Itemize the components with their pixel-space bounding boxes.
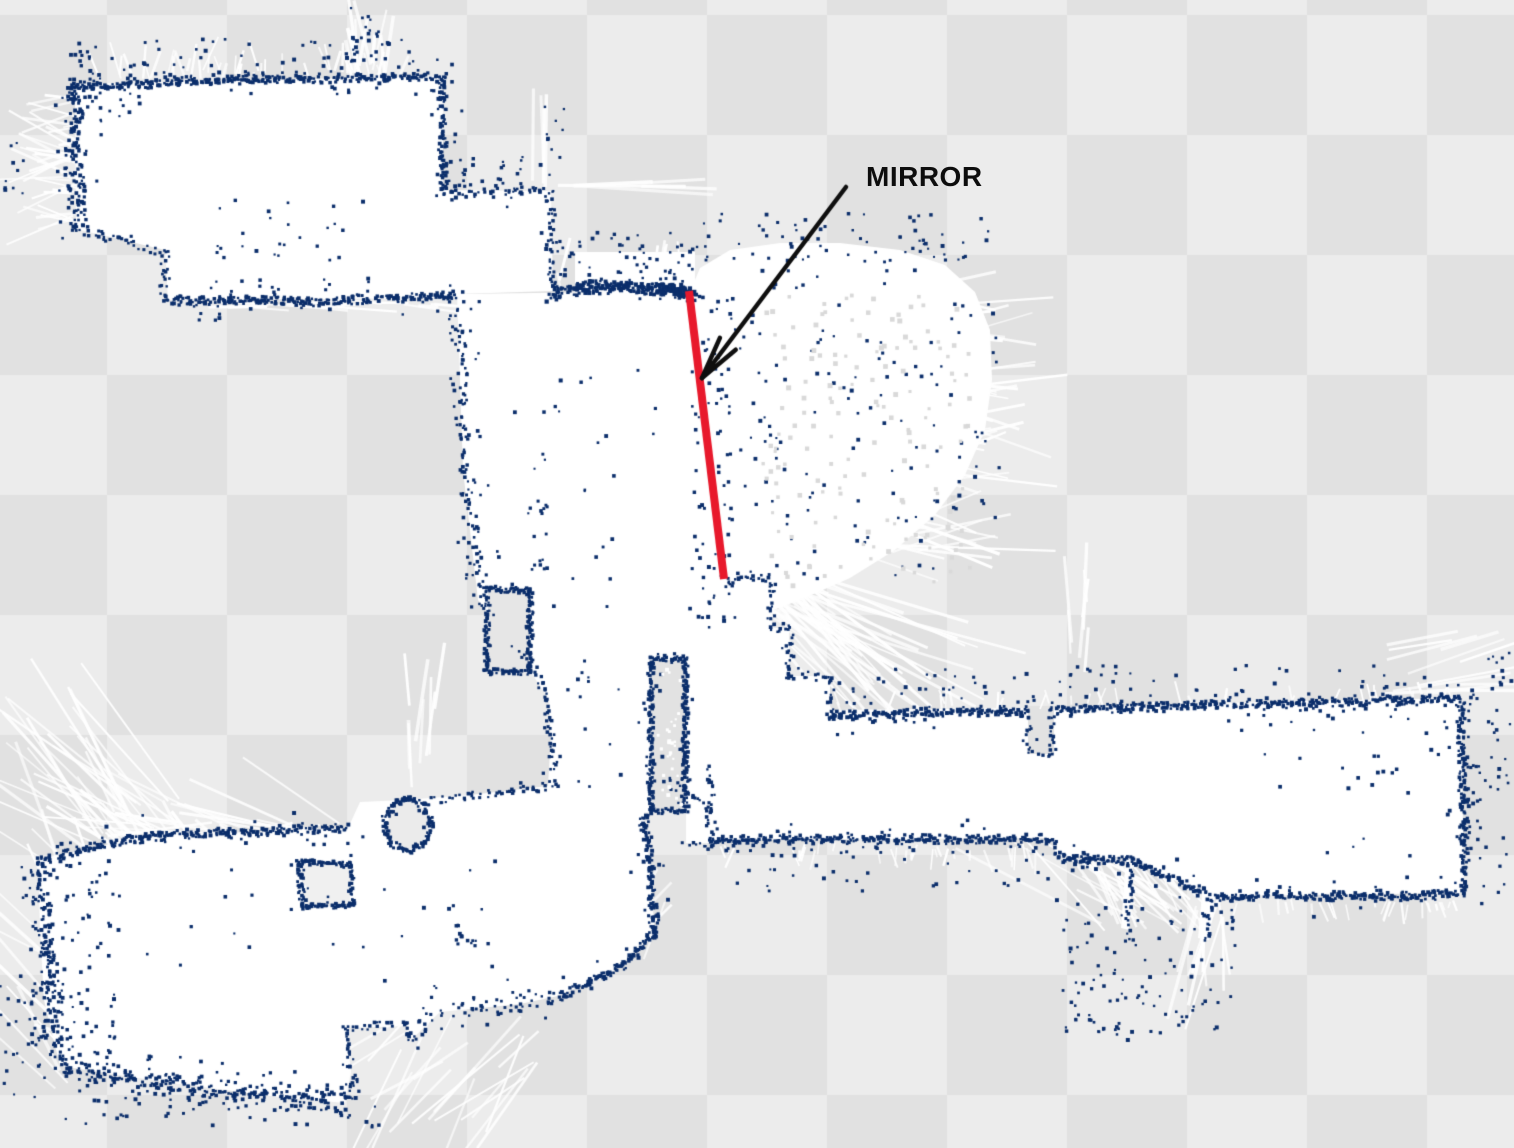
map-canvas — [0, 0, 1514, 1148]
slam-map: MIRROR — [0, 0, 1514, 1148]
mirror-label: MIRROR — [866, 163, 983, 191]
